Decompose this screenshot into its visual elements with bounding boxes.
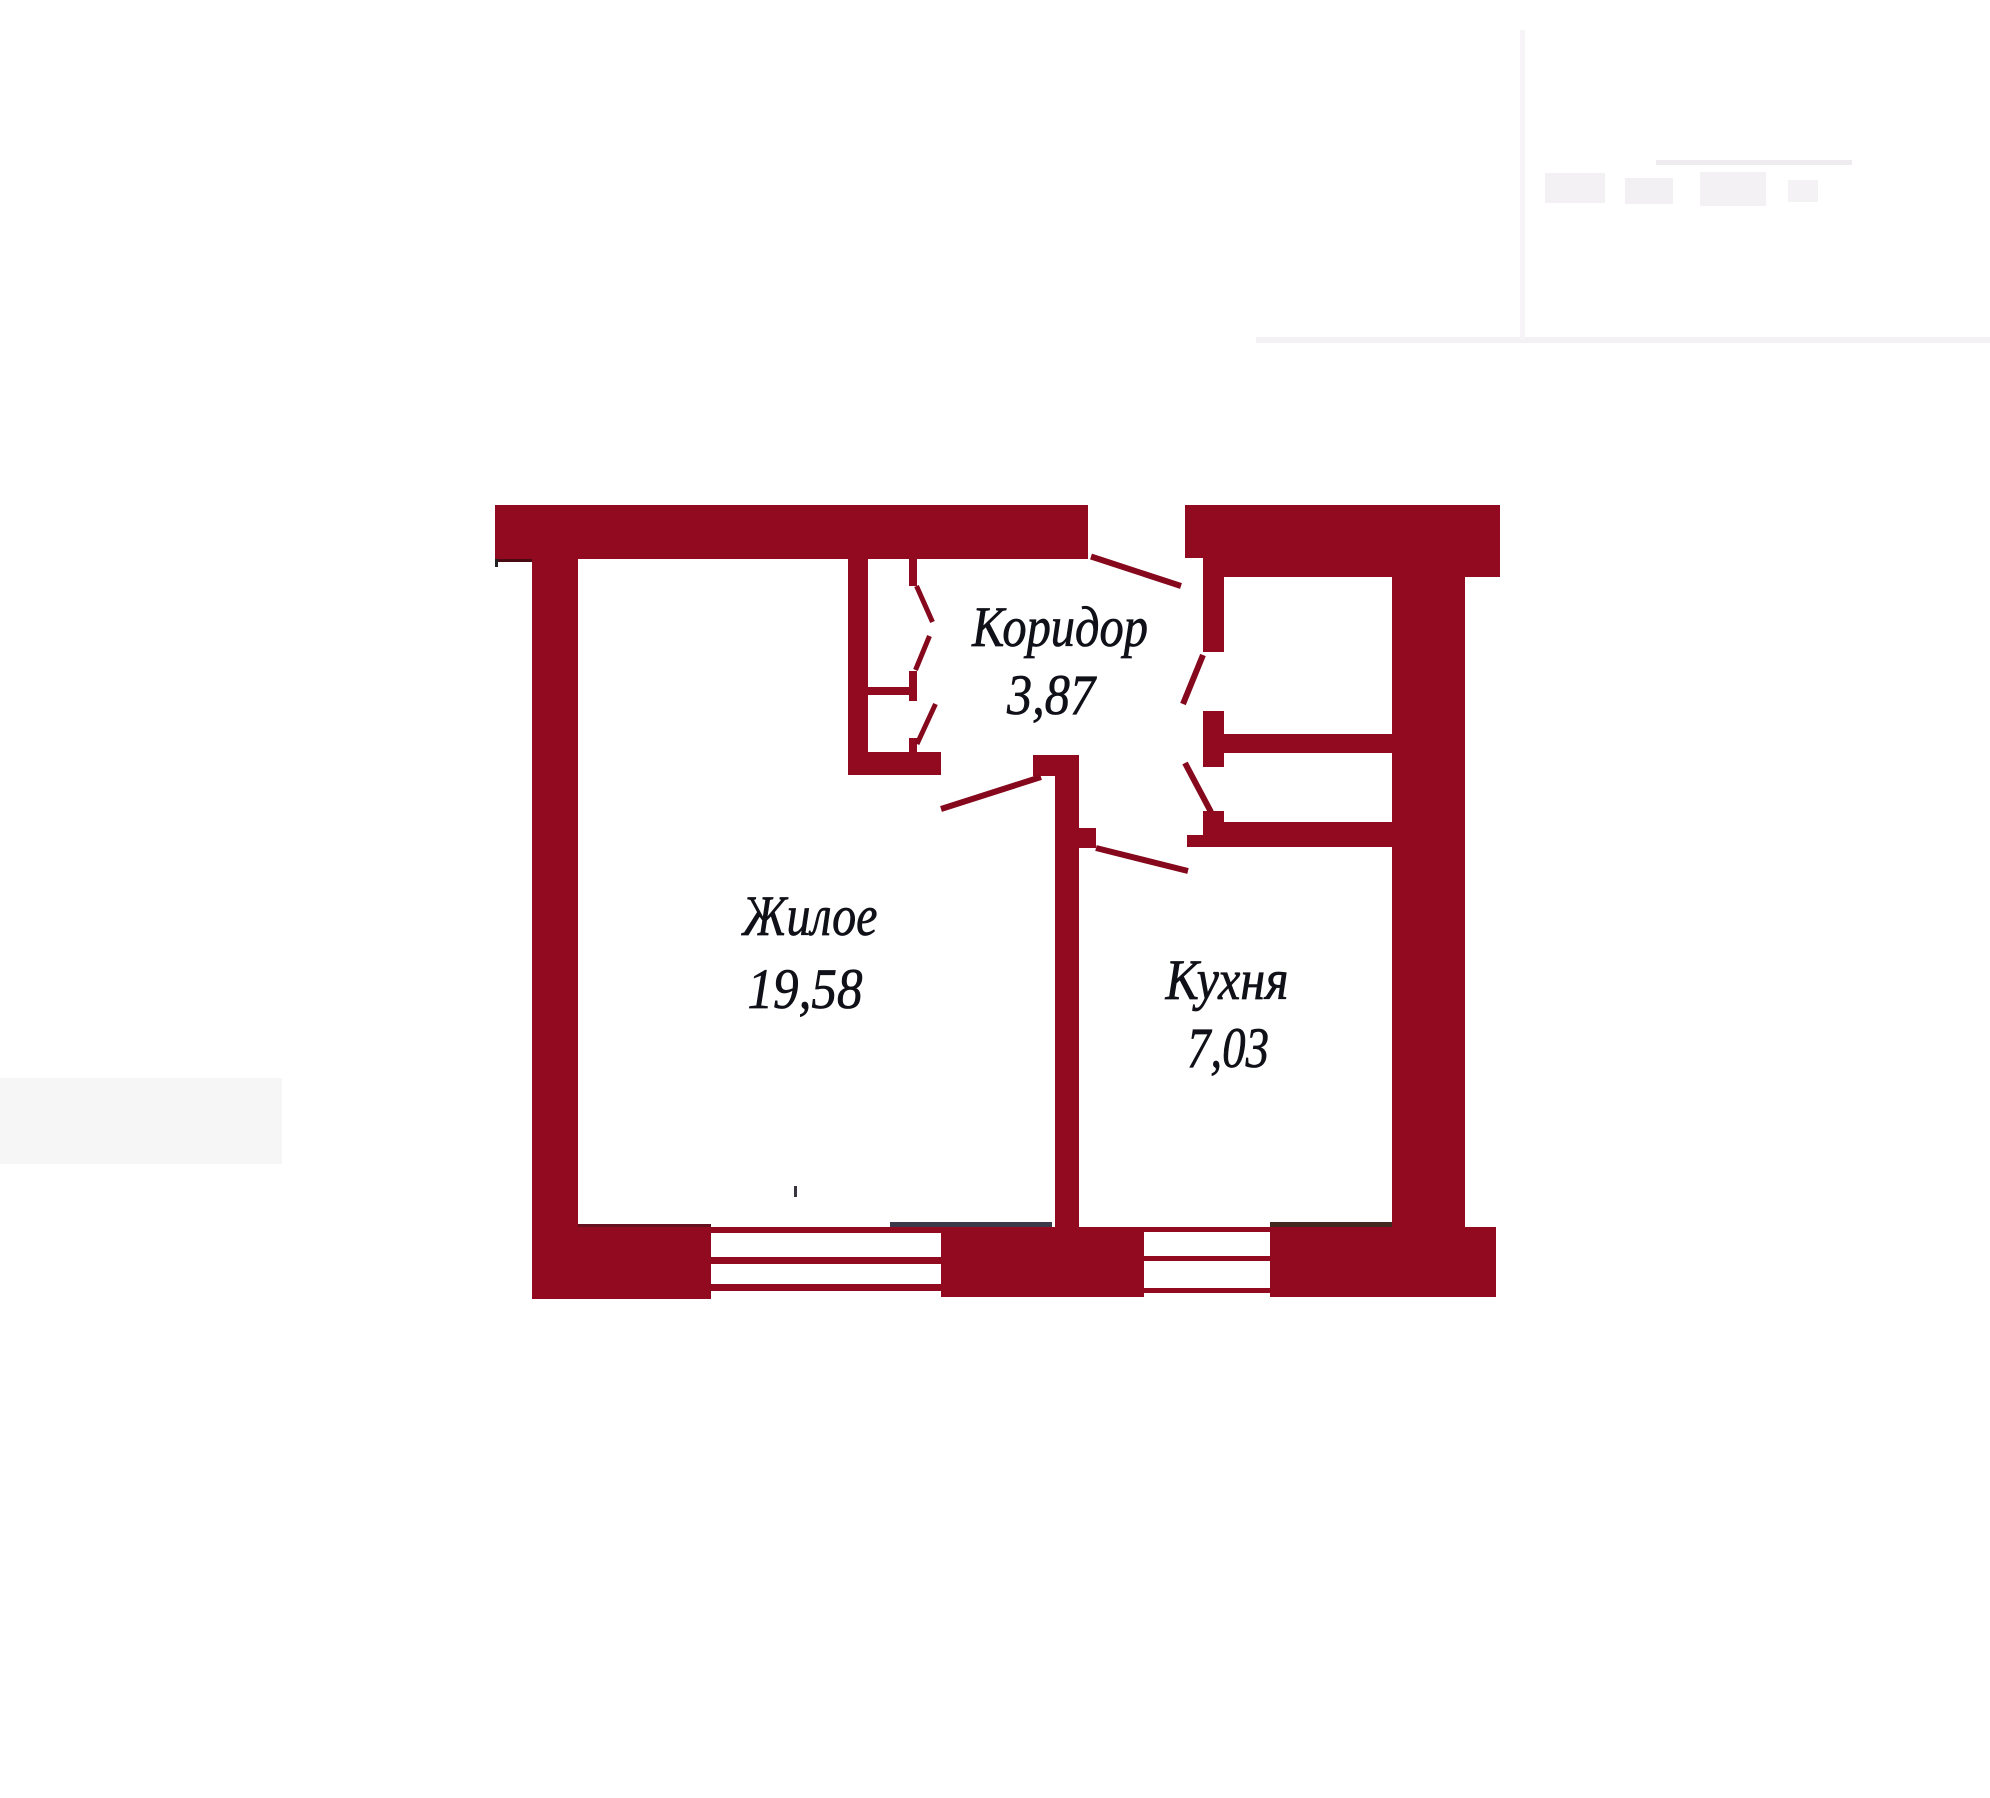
svg-text:Жилое: Жилое: [741, 885, 878, 948]
svg-text:Коридор: Коридор: [971, 596, 1148, 659]
svg-text:3,87: 3,87: [1006, 664, 1097, 727]
svg-text:Кухня: Кухня: [1165, 949, 1289, 1012]
svg-text:7,03: 7,03: [1187, 1017, 1269, 1080]
svg-text:19,58: 19,58: [748, 958, 863, 1021]
